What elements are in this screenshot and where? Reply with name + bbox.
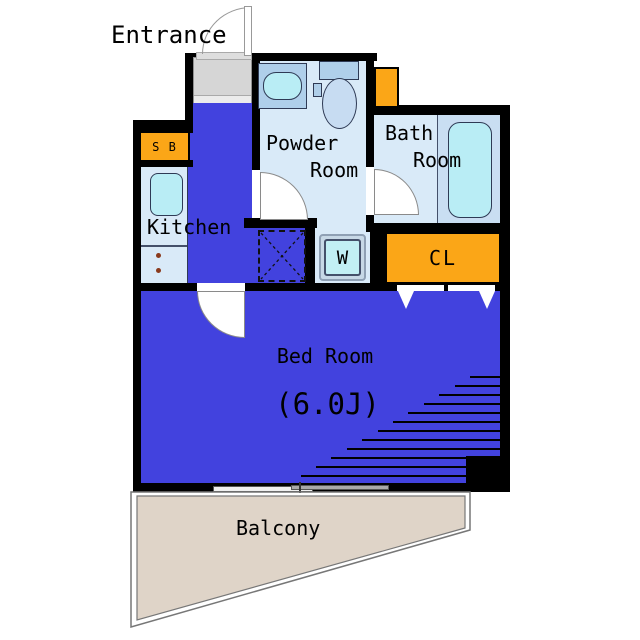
powder-room-label-2: Room (310, 158, 358, 182)
hallway-floor (188, 100, 252, 291)
wall-right-outer (500, 105, 510, 492)
powder-door-opening (252, 170, 260, 218)
genkan-step-edge (194, 95, 251, 103)
wall-left-outer (133, 120, 141, 492)
bath-room-label-2: Room (413, 148, 461, 172)
wall-fridge-divider (305, 228, 315, 291)
balcony-label: Balcony (236, 516, 320, 540)
pipe-space (374, 67, 399, 108)
shoe-box: S B (139, 131, 190, 162)
refrigerator-cross (260, 232, 304, 280)
kitchen-sink (150, 173, 183, 216)
bath-door-opening (366, 167, 374, 215)
closet: CL (385, 232, 501, 284)
bath-room-label-1: Bath (385, 121, 433, 145)
bedroom-door-opening (197, 283, 245, 291)
kitchen-counter-divider (141, 245, 187, 247)
shoe-box-label: S B (152, 140, 177, 154)
kitchen-label: Kitchen (147, 215, 231, 239)
wall-bedroom-top-left (133, 283, 197, 291)
closet-door-panel-1 (397, 285, 444, 292)
entrance-door-leaf (244, 6, 252, 56)
closet-door-panel-2 (448, 285, 495, 292)
wall-bath-bottom (368, 223, 510, 232)
wall-entrance-left (185, 53, 193, 128)
stove-dot-2 (156, 268, 161, 273)
washer-box: W (324, 239, 361, 276)
washer-label: W (337, 247, 348, 269)
closet-label: CL (429, 246, 457, 270)
floor-plan: S B CL W (0, 0, 640, 640)
vanity-sink (263, 72, 302, 100)
bedroom-size-label: (6.0J) (225, 387, 430, 421)
balcony (120, 485, 520, 640)
bedroom-label: Bed Room (225, 344, 425, 368)
refrigerator-space (258, 230, 306, 282)
toilet-handle (313, 83, 322, 97)
entrance-label: Entrance (111, 21, 227, 49)
toilet-bowl (322, 78, 357, 129)
powder-room-label-1: Powder (266, 131, 338, 155)
stove-dot-1 (156, 253, 161, 258)
